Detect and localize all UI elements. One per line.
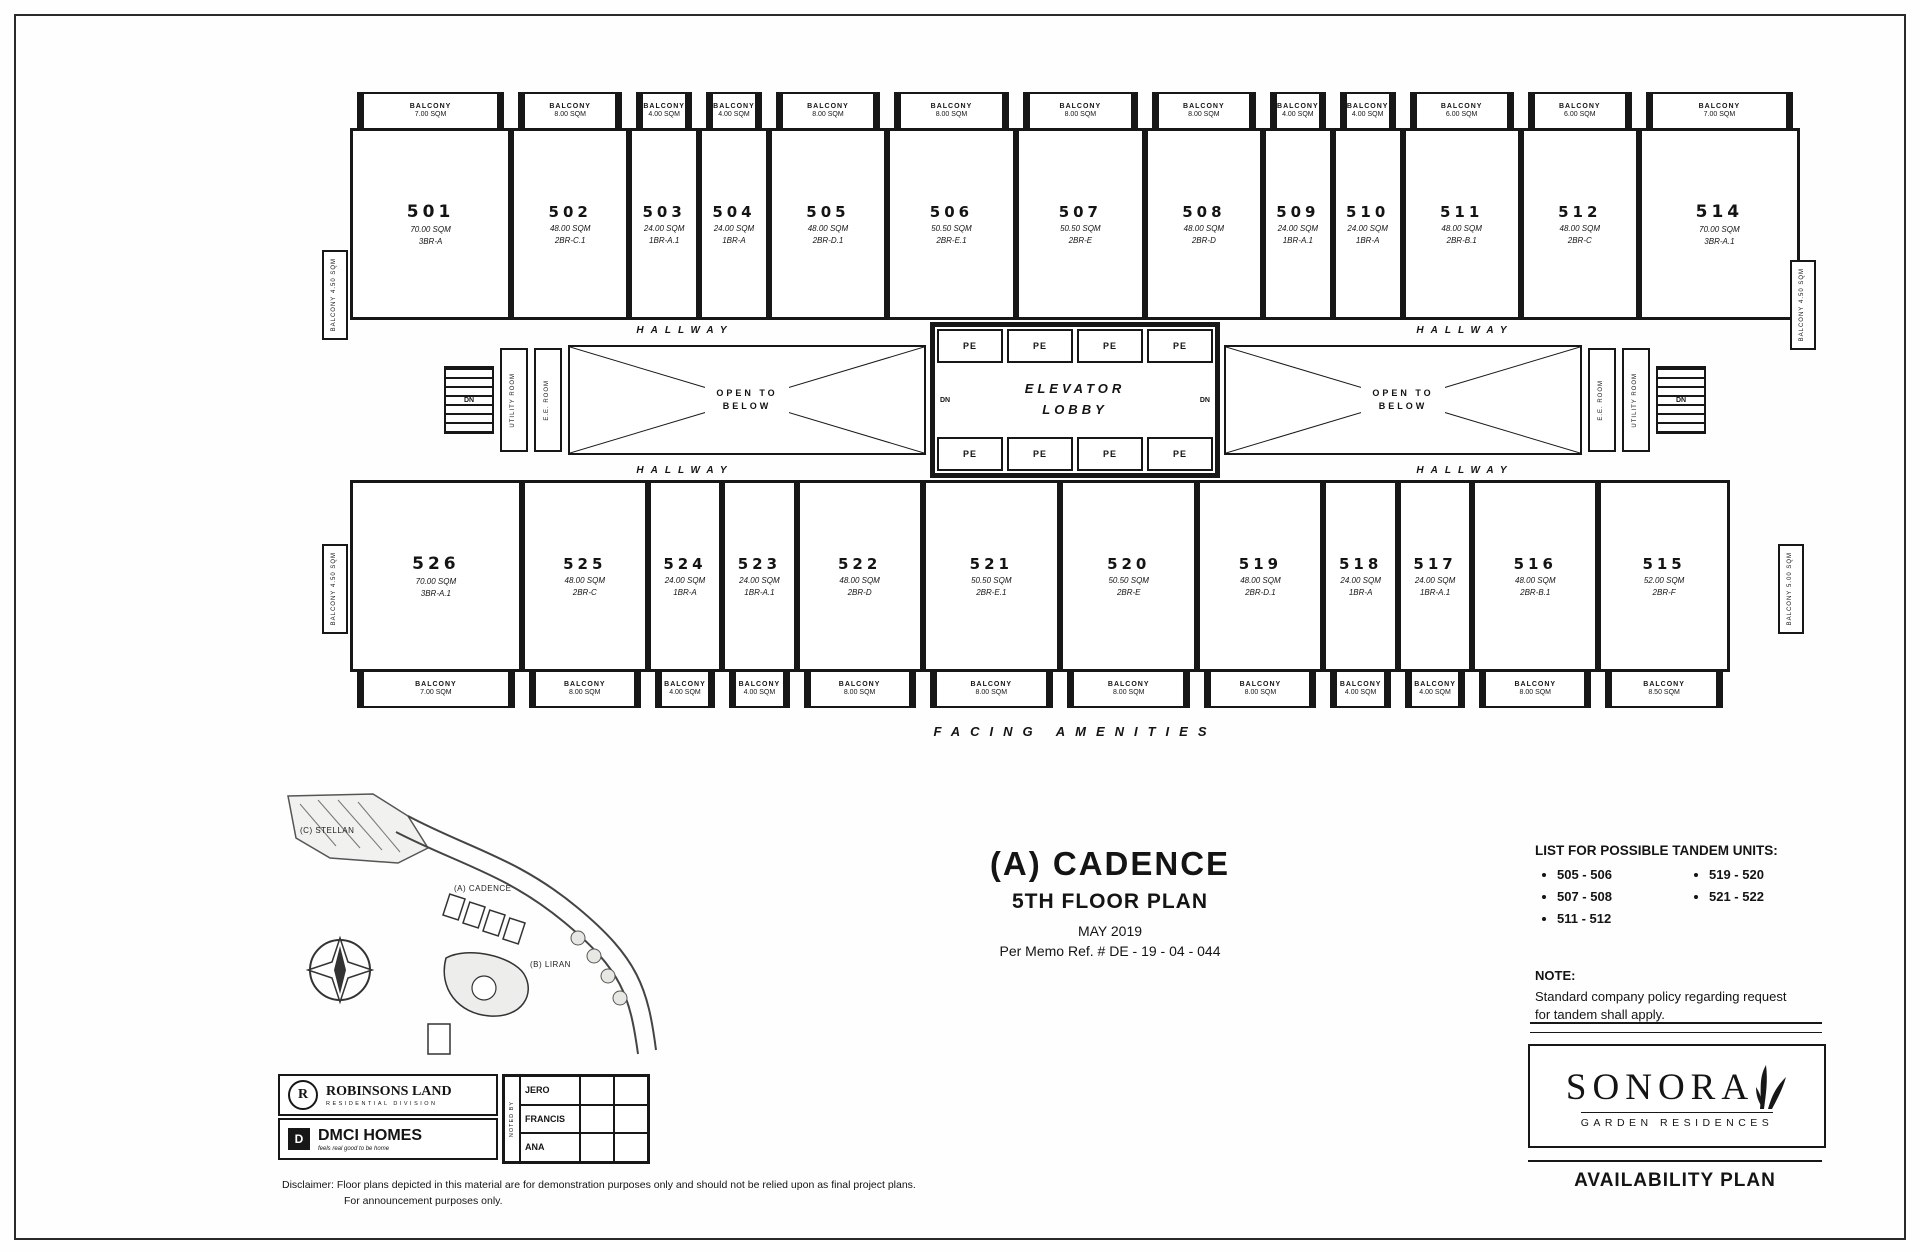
unit-type: 2BR-D (848, 588, 872, 597)
unit-517: 51724.00 SQM1BR-A.1 BALCONY4.00 SQM (1398, 480, 1472, 708)
balcony-area: 8.00 SQM (976, 689, 1008, 697)
unit-box: 52670.00 SQM3BR-A.1 (350, 480, 522, 672)
unit-area: 50.50 SQM (971, 576, 1011, 585)
unit-area: 24.00 SQM (1415, 576, 1455, 585)
signature-cell (580, 1076, 614, 1105)
balcony-area: 8.00 SQM (1520, 689, 1552, 697)
balcony-word: BALCONY (1347, 103, 1389, 111)
building-title: (A) CADENCE (930, 845, 1290, 883)
down-label: DN (1200, 397, 1210, 404)
open-below-label: OPEN TO BELOW (1361, 385, 1445, 416)
balcony-area: 4.00 SQM (648, 111, 680, 119)
open-to-below-right: OPEN TO BELOW (1224, 345, 1582, 455)
top-unit-row: BALCONY7.00 SQM 50170.00 SQM3BR-A BALCON… (350, 92, 1800, 320)
balcony-word: BALCONY (839, 681, 881, 689)
unit-506: BALCONY8.00 SQM 50650.50 SQM2BR-E.1 (887, 92, 1016, 320)
balcony-word: BALCONY (1514, 681, 1556, 689)
balcony-507: BALCONY8.00 SQM (1028, 92, 1133, 128)
balcony-501: BALCONY7.00 SQM (362, 92, 499, 128)
unit-area: 24.00 SQM (644, 224, 684, 233)
balcony-area: 7.00 SQM (420, 689, 452, 697)
unit-box: 51470.00 SQM3BR-A.1 (1639, 128, 1800, 320)
unit-508: BALCONY8.00 SQM 50848.00 SQM2BR-D (1145, 92, 1263, 320)
balcony-509: BALCONY4.00 SQM (1275, 92, 1321, 128)
unit-box: 51724.00 SQM1BR-A.1 (1398, 480, 1472, 672)
tandem-pair: 519 - 520 (1709, 867, 1835, 882)
unit-515: 51552.00 SQM2BR-F BALCONY8.50 SQM (1598, 480, 1730, 708)
unit-520: 52050.50 SQM2BR-E BALCONY8.00 SQM (1060, 480, 1197, 708)
balcony-area: 6.00 SQM (1446, 111, 1478, 119)
disclaimer-line-2: For announcement purposes only. (344, 1194, 942, 1210)
dmci-name: DMCI HOMES (318, 1127, 422, 1145)
dmci-tagline: feels real good to be home (318, 1146, 422, 1152)
tandem-pair: 505 - 506 (1557, 867, 1683, 882)
unit-number: 519 (1239, 555, 1282, 573)
unit-number: 508 (1182, 203, 1225, 221)
robinsons-monogram-icon: R (288, 1080, 318, 1110)
ee-room-right: E.E. ROOM (1588, 348, 1616, 452)
balcony-word: BALCONY (1277, 103, 1319, 111)
unit-type: 3BR-A (419, 237, 443, 246)
unit-number: 525 (563, 555, 606, 573)
unit-area: 50.50 SQM (1108, 576, 1148, 585)
unit-box: 50848.00 SQM2BR-D (1145, 128, 1263, 320)
balcony-502: BALCONY8.00 SQM (523, 92, 617, 128)
balcony-word: BALCONY (410, 103, 452, 111)
elevator-lobby: PE PE PE PE DN ELEVATOR LOBBY DN PE PE P… (930, 322, 1220, 478)
unit-box: 50548.00 SQM2BR-D.1 (769, 128, 887, 320)
unit-type: 1BR-A (1349, 588, 1373, 597)
hallway-label: HALLWAY (636, 465, 733, 476)
note-block: NOTE: Standard company policy regarding … (1535, 968, 1800, 1023)
balcony-area: 4.00 SQM (1352, 111, 1384, 119)
balcony-area: 4.00 SQM (669, 689, 701, 697)
unit-box: 50424.00 SQM1BR-A (699, 128, 769, 320)
elevator-pe: PE (937, 329, 1003, 363)
unit-area: 70.00 SQM (416, 577, 456, 586)
unit-number: 518 (1339, 555, 1382, 573)
unit-box: 50170.00 SQM3BR-A (350, 128, 511, 320)
balcony-area: 6.00 SQM (1564, 111, 1596, 119)
open-below-label: OPEN TO BELOW (705, 385, 789, 416)
balcony-510: BALCONY4.00 SQM (1345, 92, 1391, 128)
floor-plan-sheet: BALCONY7.00 SQM 50170.00 SQM3BR-A BALCON… (0, 0, 1920, 1253)
open-to-below-left: OPEN TO BELOW (568, 345, 926, 455)
down-label: DN (1674, 397, 1688, 404)
plan-date: MAY 2019 (930, 923, 1290, 939)
balcony-517: BALCONY4.00 SQM (1410, 672, 1460, 708)
balcony-area: 4.00 SQM (718, 111, 750, 119)
project-name: SONORA (1566, 1066, 1754, 1109)
unit-505: BALCONY8.00 SQM 50548.00 SQM2BR-D.1 (769, 92, 887, 320)
unit-box: 51552.00 SQM2BR-F (1598, 480, 1730, 672)
noted-by-table: NOTED BY JERO FRANCIS ANA (502, 1074, 650, 1164)
unit-516: 51648.00 SQM2BR-B.1 BALCONY8.00 SQM (1472, 480, 1598, 708)
corridor-right: HALLWAY OPEN TO BELOW E.E. ROOM UTILITY … (1220, 320, 1710, 480)
tandem-units-list: LIST FOR POSSIBLE TANDEM UNITS: 505 - 50… (1535, 843, 1835, 933)
unit-514: BALCONY7.00 SQM 51470.00 SQM3BR-A.1 (1639, 92, 1800, 320)
unit-number: 524 (663, 555, 706, 573)
balcony-area: 8.00 SQM (812, 111, 844, 119)
sonora-logo: SONORA GARDEN RESIDENCES (1528, 1044, 1826, 1148)
availability-plan-label: AVAILABILITY PLAN (1528, 1160, 1822, 1192)
unit-area: 50.50 SQM (1060, 224, 1100, 233)
stairs-left: DN (444, 366, 494, 434)
unit-type: 2BR-C.1 (555, 236, 586, 245)
unit-box: 50924.00 SQM1BR-A.1 (1263, 128, 1333, 320)
tandem-column-2: 519 - 520 521 - 522 (1687, 867, 1835, 933)
down-label: DN (462, 397, 476, 404)
unit-box: 50750.50 SQM2BR-E (1016, 128, 1145, 320)
balcony-503: BALCONY4.00 SQM (641, 92, 687, 128)
balcony-word: BALCONY (643, 103, 685, 111)
unit-area: 48.00 SQM (1441, 224, 1481, 233)
side-balcony-514: BALCONY 4.50 SQM (1790, 260, 1816, 350)
balcony-word: BALCONY (549, 103, 591, 111)
unit-box: 51948.00 SQM2BR-D.1 (1197, 480, 1323, 672)
unit-509: BALCONY4.00 SQM 50924.00 SQM1BR-A.1 (1263, 92, 1333, 320)
unit-type: 3BR-A.1 (1704, 237, 1734, 246)
unit-510: BALCONY4.00 SQM 51024.00 SQM1BR-A (1333, 92, 1403, 320)
unit-type: 1BR-A.1 (1283, 236, 1313, 245)
unit-area: 24.00 SQM (665, 576, 705, 585)
unit-number: 510 (1346, 203, 1389, 221)
signatory-name: JERO (520, 1076, 580, 1105)
side-balcony-515: BALCONY 5.00 SQM (1778, 544, 1804, 634)
unit-type: 2BR-E (1117, 588, 1141, 597)
unit-type: 1BR-A (1356, 236, 1380, 245)
balcony-area: 7.00 SQM (1704, 111, 1736, 119)
unit-524: 52424.00 SQM1BR-A BALCONY4.00 SQM (648, 480, 722, 708)
balcony-515: BALCONY8.50 SQM (1610, 672, 1718, 708)
unit-box: 52150.50 SQM2BR-E.1 (923, 480, 1060, 672)
central-corridor: HALLWAY DN UTILITY ROOM E.E. ROOM OPEN T… (440, 320, 1710, 480)
unit-box: 50248.00 SQM2BR-C.1 (511, 128, 629, 320)
project-subtitle: GARDEN RESIDENCES (1581, 1112, 1774, 1129)
unit-number: 521 (970, 555, 1013, 573)
signature-cell (580, 1105, 614, 1134)
unit-number: 522 (838, 555, 881, 573)
balcony-516: BALCONY8.00 SQM (1484, 672, 1586, 708)
balcony-area: 4.00 SQM (744, 689, 776, 697)
balcony-area: 4.00 SQM (1282, 111, 1314, 119)
unit-area: 48.00 SQM (565, 576, 605, 585)
hallway-label: HALLWAY (1416, 465, 1513, 476)
elevator-pe: PE (937, 437, 1003, 471)
title-block: (A) CADENCE 5TH FLOOR PLAN MAY 2019 Per … (930, 845, 1290, 959)
balcony-506: BALCONY8.00 SQM (899, 92, 1004, 128)
unit-area: 24.00 SQM (1340, 576, 1380, 585)
unit-number: 507 (1059, 203, 1102, 221)
signature-cell (614, 1076, 648, 1105)
unit-area: 48.00 SQM (1515, 576, 1555, 585)
unit-box: 51648.00 SQM2BR-B.1 (1472, 480, 1598, 672)
unit-box: 50650.50 SQM2BR-E.1 (887, 128, 1016, 320)
unit-area: 24.00 SQM (1347, 224, 1387, 233)
unit-number: 515 (1642, 555, 1685, 573)
balcony-508: BALCONY8.00 SQM (1157, 92, 1251, 128)
tandem-heading: LIST FOR POSSIBLE TANDEM UNITS: (1535, 843, 1835, 858)
balcony-word: BALCONY (1414, 681, 1456, 689)
unit-type: 2BR-B.1 (1520, 588, 1550, 597)
balcony-area: 8.50 SQM (1648, 689, 1680, 697)
leaf-icon (1754, 1063, 1788, 1109)
signatory-name: ANA (520, 1133, 580, 1162)
balcony-505: BALCONY8.00 SQM (781, 92, 875, 128)
unit-526: 52670.00 SQM3BR-A.1 BALCONY7.00 SQM (350, 480, 522, 708)
unit-522: 52248.00 SQM2BR-D BALCONY8.00 SQM (797, 480, 923, 708)
unit-521: 52150.50 SQM2BR-E.1 BALCONY8.00 SQM (923, 480, 1060, 708)
unit-area: 24.00 SQM (714, 224, 754, 233)
balcony-word: BALCONY (1340, 681, 1382, 689)
unit-area: 48.00 SQM (1184, 224, 1224, 233)
unit-type: 2BR-C (573, 588, 597, 597)
unit-number: 501 (407, 202, 455, 222)
balcony-area: 4.00 SQM (1345, 689, 1377, 697)
disclaimer: Disclaimer: Floor plans depicted in this… (282, 1178, 942, 1210)
balcony-519: BALCONY8.00 SQM (1209, 672, 1311, 708)
balcony-525: BALCONY8.00 SQM (534, 672, 636, 708)
balcony-518: BALCONY4.00 SQM (1335, 672, 1385, 708)
balcony-512: BALCONY6.00 SQM (1533, 92, 1627, 128)
balcony-word: BALCONY (970, 681, 1012, 689)
balcony-word: BALCONY (1183, 103, 1225, 111)
balcony-area: 8.00 SQM (554, 111, 586, 119)
site-label-liran: (B) LIRAN (530, 960, 571, 969)
compass-icon (308, 938, 372, 1002)
unit-number: 517 (1413, 555, 1456, 573)
balcony-word: BALCONY (1643, 681, 1685, 689)
unit-area: 48.00 SQM (839, 576, 879, 585)
unit-box: 51824.00 SQM1BR-A (1323, 480, 1397, 672)
unit-number: 526 (412, 554, 460, 574)
down-label: DN (940, 397, 950, 404)
unit-503: BALCONY4.00 SQM 50324.00 SQM1BR-A.1 (629, 92, 699, 320)
unit-type: 1BR-A.1 (744, 588, 774, 597)
unit-area: 48.00 SQM (1240, 576, 1280, 585)
signatory-name: FRANCIS (520, 1105, 580, 1134)
balcony-area: 8.00 SQM (1065, 111, 1097, 119)
hallway-label: HALLWAY (636, 325, 733, 336)
unit-area: 24.00 SQM (1278, 224, 1318, 233)
balcony-511: BALCONY6.00 SQM (1415, 92, 1509, 128)
balcony-area: 8.00 SQM (1245, 689, 1277, 697)
unit-525: 52548.00 SQM2BR-C BALCONY8.00 SQM (522, 480, 648, 708)
balcony-area: 8.00 SQM (844, 689, 876, 697)
balcony-word: BALCONY (739, 681, 781, 689)
utility-room-left: UTILITY ROOM (500, 348, 528, 452)
balcony-504: BALCONY4.00 SQM (711, 92, 757, 128)
balcony-word: BALCONY (1060, 103, 1102, 111)
signature-cell (614, 1133, 648, 1162)
unit-number: 504 (712, 203, 755, 221)
elevator-pe: PE (1147, 437, 1213, 471)
unit-512: BALCONY6.00 SQM 51248.00 SQM2BR-C (1521, 92, 1639, 320)
unit-504: BALCONY4.00 SQM 50424.00 SQM1BR-A (699, 92, 769, 320)
tandem-column-1: 505 - 506 507 - 508 511 - 512 (1535, 867, 1683, 933)
unit-type: 2BR-D.1 (813, 236, 844, 245)
unit-501: BALCONY7.00 SQM 50170.00 SQM3BR-A (350, 92, 511, 320)
unit-type: 2BR-E.1 (976, 588, 1006, 597)
robinsons-land-logo: R ROBINSONS LAND RESIDENTIAL DIVISION (278, 1074, 498, 1116)
unit-number: 502 (549, 203, 592, 221)
balcony-word: BALCONY (713, 103, 755, 111)
balcony-area: 4.00 SQM (1419, 689, 1451, 697)
unit-type: 2BR-F (1653, 588, 1676, 597)
balcony-word: BALCONY (664, 681, 706, 689)
stairs-right: DN (1656, 366, 1706, 434)
unit-519: 51948.00 SQM2BR-D.1 BALCONY8.00 SQM (1197, 480, 1323, 708)
elevator-pe: PE (1147, 329, 1213, 363)
unit-area: 48.00 SQM (808, 224, 848, 233)
noted-by-header: NOTED BY (504, 1076, 520, 1162)
site-label-cadence: (A) CADENCE (454, 884, 512, 893)
side-balcony-526: BALCONY 4.50 SQM (322, 544, 348, 634)
unit-area: 48.00 SQM (550, 224, 590, 233)
unit-number: 512 (1558, 203, 1601, 221)
unit-area: 52.00 SQM (1644, 576, 1684, 585)
unit-type: 1BR-A.1 (649, 236, 679, 245)
unit-box: 52324.00 SQM1BR-A.1 (722, 480, 796, 672)
disclaimer-line-1: Disclaimer: Floor plans depicted in this… (282, 1178, 942, 1194)
unit-523: 52324.00 SQM1BR-A.1 BALCONY4.00 SQM (722, 480, 796, 708)
unit-number: 503 (643, 203, 686, 221)
unit-type: 2BR-D.1 (1245, 588, 1276, 597)
separator-rules (1530, 1022, 1822, 1033)
floor-plan-drawing: BALCONY7.00 SQM 50170.00 SQM3BR-A BALCON… (350, 92, 1800, 757)
unit-area: 24.00 SQM (739, 576, 779, 585)
unit-number: 506 (930, 203, 973, 221)
unit-box: 52548.00 SQM2BR-C (522, 480, 648, 672)
unit-type: 2BR-D (1192, 236, 1216, 245)
balcony-area: 8.00 SQM (1113, 689, 1145, 697)
balcony-word: BALCONY (1108, 681, 1150, 689)
site-location-map: (C) STELLAN (A) CADENCE (B) LIRAN (278, 788, 670, 1068)
elevator-pe: PE (1007, 437, 1073, 471)
balcony-521: BALCONY8.00 SQM (935, 672, 1048, 708)
floor-title: 5TH FLOOR PLAN (930, 890, 1290, 914)
unit-number: 520 (1107, 555, 1150, 573)
bottom-unit-row: 52670.00 SQM3BR-A.1 BALCONY7.00 SQM 5254… (350, 480, 1800, 708)
unit-number: 505 (806, 203, 849, 221)
unit-box: 52248.00 SQM2BR-D (797, 480, 923, 672)
unit-area: 48.00 SQM (1560, 224, 1600, 233)
balcony-word: BALCONY (415, 681, 457, 689)
unit-number: 516 (1514, 555, 1557, 573)
balcony-522: BALCONY8.00 SQM (809, 672, 911, 708)
balcony-word: BALCONY (1559, 103, 1601, 111)
balcony-area: 7.00 SQM (415, 111, 447, 119)
hallway-label: HALLWAY (1416, 325, 1513, 336)
balcony-524: BALCONY4.00 SQM (660, 672, 710, 708)
balcony-word: BALCONY (1240, 681, 1282, 689)
unit-number: 509 (1276, 203, 1319, 221)
unit-number: 523 (738, 555, 781, 573)
memo-reference: Per Memo Ref. # DE - 19 - 04 - 044 (930, 943, 1290, 959)
balcony-523: BALCONY4.00 SQM (734, 672, 784, 708)
utility-room-right: UTILITY ROOM (1622, 348, 1650, 452)
facing-amenities-label: FACING AMENITIES (350, 724, 1800, 739)
tandem-pair: 511 - 512 (1557, 911, 1683, 926)
unit-type: 3BR-A.1 (421, 589, 451, 598)
unit-box: 51148.00 SQM2BR-B.1 (1403, 128, 1521, 320)
unit-box: 51024.00 SQM1BR-A (1333, 128, 1403, 320)
dmci-monogram-icon: D (288, 1128, 310, 1150)
balcony-526: BALCONY7.00 SQM (362, 672, 510, 708)
note-text: Standard company policy regarding reques… (1535, 988, 1800, 1023)
balcony-word: BALCONY (564, 681, 606, 689)
elevator-pe: PE (1077, 437, 1143, 471)
balcony-word: BALCONY (931, 103, 973, 111)
signature-cell (614, 1105, 648, 1134)
elevator-pe: PE (1007, 329, 1073, 363)
unit-type: 2BR-E.1 (936, 236, 966, 245)
tandem-pair: 507 - 508 (1557, 889, 1683, 904)
balcony-area: 8.00 SQM (569, 689, 601, 697)
unit-type: 1BR-A.1 (1420, 588, 1450, 597)
balcony-word: BALCONY (1441, 103, 1483, 111)
unit-type: 1BR-A (673, 588, 697, 597)
balcony-520: BALCONY8.00 SQM (1072, 672, 1185, 708)
corridor-left: HALLWAY DN UTILITY ROOM E.E. ROOM OPEN T… (440, 320, 930, 480)
unit-502: BALCONY8.00 SQM 50248.00 SQM2BR-C.1 (511, 92, 629, 320)
unit-number: 514 (1696, 202, 1744, 222)
signature-cell (580, 1133, 614, 1162)
unit-box: 50324.00 SQM1BR-A.1 (629, 128, 699, 320)
ee-room-left: E.E. ROOM (534, 348, 562, 452)
unit-507: BALCONY8.00 SQM 50750.50 SQM2BR-E (1016, 92, 1145, 320)
unit-type: 2BR-B.1 (1447, 236, 1477, 245)
unit-type: 2BR-C (1568, 236, 1592, 245)
balcony-514: BALCONY7.00 SQM (1651, 92, 1788, 128)
unit-type: 1BR-A (722, 236, 746, 245)
unit-type: 2BR-E (1069, 236, 1093, 245)
balcony-area: 8.00 SQM (1188, 111, 1220, 119)
unit-box: 51248.00 SQM2BR-C (1521, 128, 1639, 320)
tandem-pair: 521 - 522 (1709, 889, 1835, 904)
unit-518: 51824.00 SQM1BR-A BALCONY4.00 SQM (1323, 480, 1397, 708)
dmci-homes-logo: D DMCI HOMES feels real good to be home (278, 1118, 498, 1160)
elevator-pe: PE (1077, 329, 1143, 363)
side-balcony-501: BALCONY 4.50 SQM (322, 250, 348, 340)
balcony-word: BALCONY (807, 103, 849, 111)
unit-area: 70.00 SQM (1699, 225, 1739, 234)
unit-511: BALCONY6.00 SQM 51148.00 SQM2BR-B.1 (1403, 92, 1521, 320)
elevator-lobby-label: ELEVATOR LOBBY (1015, 379, 1135, 421)
robinsons-subtitle: RESIDENTIAL DIVISION (326, 1101, 452, 1107)
unit-area: 50.50 SQM (931, 224, 971, 233)
site-label-stellan: (C) STELLAN (300, 826, 354, 835)
balcony-area: 8.00 SQM (936, 111, 968, 119)
unit-box: 52050.50 SQM2BR-E (1060, 480, 1197, 672)
robinsons-name: ROBINSONS LAND (326, 1084, 452, 1100)
note-heading: NOTE: (1535, 968, 1800, 983)
unit-box: 52424.00 SQM1BR-A (648, 480, 722, 672)
unit-area: 70.00 SQM (410, 225, 450, 234)
unit-number: 511 (1440, 203, 1483, 221)
balcony-word: BALCONY (1699, 103, 1741, 111)
